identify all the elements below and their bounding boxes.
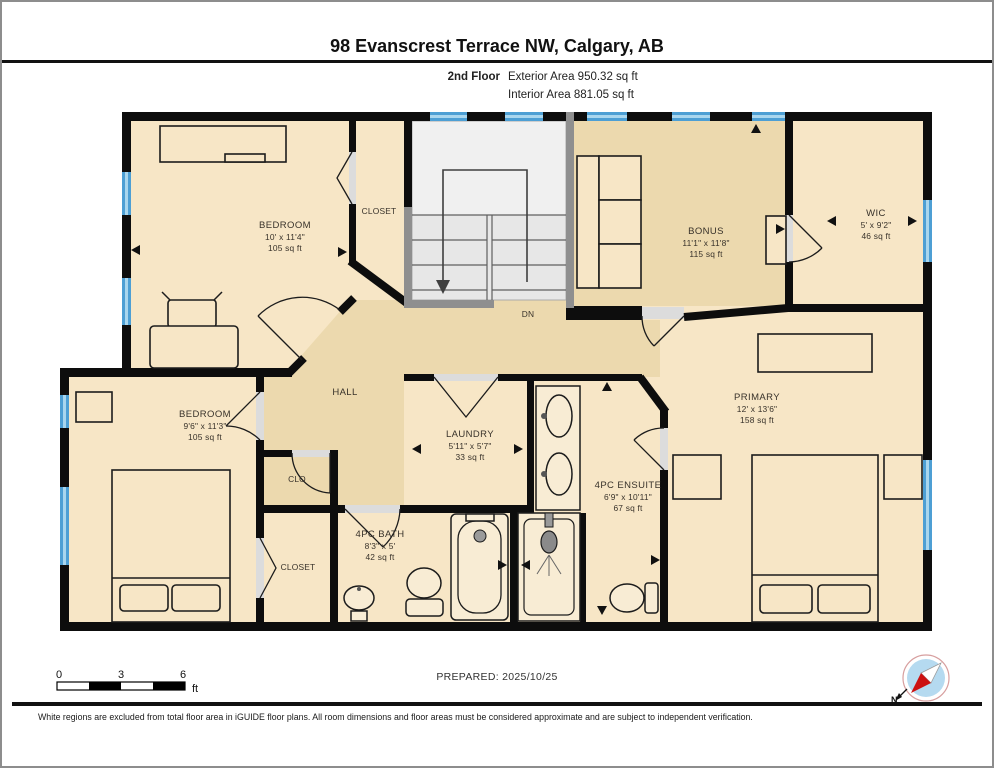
svg-text:46 sq ft: 46 sq ft — [861, 231, 891, 241]
svg-text:BONUS: BONUS — [688, 226, 724, 237]
svg-text:158 sq ft: 158 sq ft — [740, 415, 774, 425]
window — [60, 395, 69, 428]
toilet-bath — [406, 568, 443, 616]
toilet-ensuite — [610, 583, 658, 613]
svg-text:BEDROOM: BEDROOM — [179, 409, 231, 420]
interior-area-label: Interior Area 881.05 sq ft — [508, 89, 635, 101]
svg-text:6'9" x 10'11": 6'9" x 10'11" — [604, 492, 652, 502]
bed-bedroom-left — [112, 470, 230, 622]
header: 98 Evanscrest Terrace NW, Calgary, AB 2n… — [0, 36, 994, 101]
svg-text:105 sq ft: 105 sq ft — [268, 243, 302, 253]
window — [430, 112, 467, 121]
room-label-hall: HALL — [332, 387, 357, 398]
floor-plan-page: 98 Evanscrest Terrace NW, Calgary, AB 2n… — [0, 0, 994, 768]
sofa-bonus — [577, 156, 641, 288]
disclaimer-text: White regions are excluded from total fl… — [38, 712, 753, 722]
window — [122, 278, 131, 325]
window — [505, 112, 543, 121]
scale-unit: ft — [192, 683, 198, 695]
svg-text:11'1" x 11'8": 11'1" x 11'8" — [682, 238, 729, 248]
svg-text:42 sq ft: 42 sq ft — [365, 552, 395, 562]
dresser-bedroom-top — [160, 126, 286, 162]
scale-bar-seg — [153, 682, 185, 690]
svg-text:DN: DN — [522, 309, 535, 319]
svg-text:CLOSET: CLOSET — [362, 206, 397, 216]
header-divider — [0, 60, 994, 63]
svg-text:67 sq ft: 67 sq ft — [613, 503, 643, 513]
chair-bonus — [766, 216, 786, 264]
svg-text:12' x 13'6": 12' x 13'6" — [737, 404, 778, 414]
nightstand-primary-left — [673, 455, 721, 499]
svg-text:4PC ENSUITE: 4PC ENSUITE — [595, 480, 662, 491]
svg-text:PRIMARY: PRIMARY — [734, 392, 780, 403]
scale-tick-6: 6 — [180, 669, 186, 681]
svg-text:CLO: CLO — [288, 474, 306, 484]
footer: 0 3 6 ft PREPARED: 2025/10/25 N White re… — [12, 655, 982, 722]
svg-text:10' x 11'4": 10' x 11'4" — [265, 232, 305, 242]
bed-primary — [752, 455, 878, 622]
scale-bar: 0 3 6 ft — [56, 669, 198, 695]
footer-divider — [12, 702, 982, 706]
window — [923, 200, 932, 262]
svg-text:5' x 9'2": 5' x 9'2" — [861, 220, 892, 230]
svg-text:4PC BATH: 4PC BATH — [356, 529, 405, 540]
scale-tick-0: 0 — [56, 669, 62, 681]
dresser-primary — [758, 334, 872, 372]
nightstand-primary-right — [884, 455, 922, 499]
room-label-clo: CLO — [288, 474, 306, 484]
svg-text:8'3" x 5': 8'3" x 5' — [365, 541, 396, 551]
svg-text:HALL: HALL — [332, 387, 357, 398]
page-title: 98 Evanscrest Terrace NW, Calgary, AB — [330, 36, 664, 56]
svg-text:WIC: WIC — [866, 208, 886, 219]
vanity-double-sink — [536, 386, 580, 510]
exterior-area-label: Exterior Area 950.32 sq ft — [508, 71, 639, 83]
window — [672, 112, 710, 121]
room-label-bonus: BONUS 11'1" x 11'8" 115 sq ft — [682, 226, 729, 259]
window — [60, 487, 69, 565]
window — [122, 172, 131, 215]
svg-text:CLOSET: CLOSET — [281, 562, 316, 572]
window — [923, 460, 932, 550]
prepared-date: PREPARED: 2025/10/25 — [436, 671, 557, 683]
floor-plan-canvas: 98 Evanscrest Terrace NW, Calgary, AB 2n… — [0, 0, 994, 768]
svg-text:BEDROOM: BEDROOM — [259, 220, 311, 231]
svg-text:115 sq ft: 115 sq ft — [689, 249, 723, 259]
room-label-closet-top: CLOSET — [362, 206, 397, 216]
stair-landing-fill — [412, 121, 566, 215]
compass-icon: N — [891, 655, 949, 705]
stair-down-label: DN — [522, 309, 535, 319]
floor-label: 2nd Floor — [448, 71, 501, 83]
svg-text:5'11" x 5'7": 5'11" x 5'7" — [448, 441, 491, 451]
scale-tick-3: 3 — [118, 669, 124, 681]
svg-text:LAUNDRY: LAUNDRY — [446, 429, 494, 440]
window — [587, 112, 627, 121]
room-label-closet-bottom: CLOSET — [281, 562, 316, 572]
svg-text:33 sq ft: 33 sq ft — [455, 452, 485, 462]
room-label-primary: PRIMARY 12' x 13'6" 158 sq ft — [734, 392, 780, 425]
svg-text:9'6" x 11'3": 9'6" x 11'3" — [183, 421, 226, 431]
scale-bar-seg — [89, 682, 121, 690]
side-table-bedroom-left — [76, 392, 112, 422]
svg-text:105 sq ft: 105 sq ft — [188, 432, 222, 442]
